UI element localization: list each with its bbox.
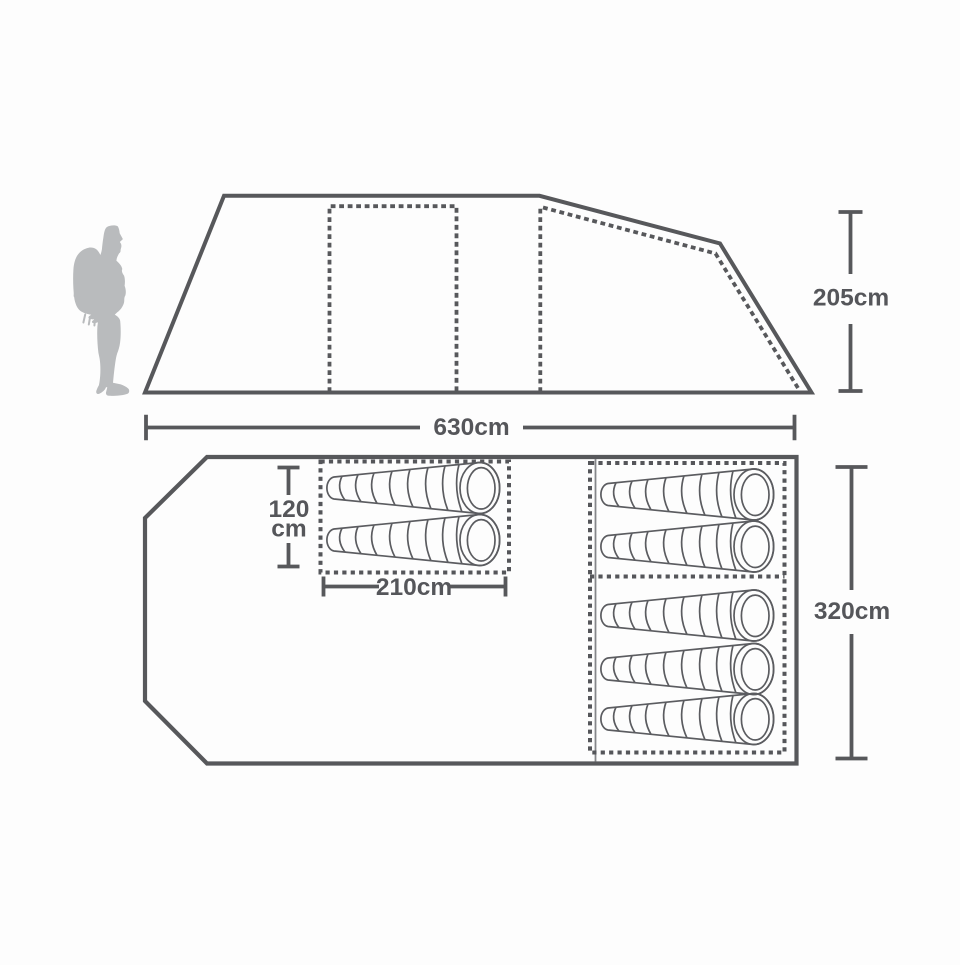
svg-text:320cm: 320cm: [814, 598, 890, 625]
svg-text:210cm: 210cm: [376, 574, 452, 601]
svg-text:630cm: 630cm: [433, 414, 509, 441]
svg-text:205cm: 205cm: [813, 285, 889, 312]
svg-text:cm: cm: [271, 516, 306, 543]
